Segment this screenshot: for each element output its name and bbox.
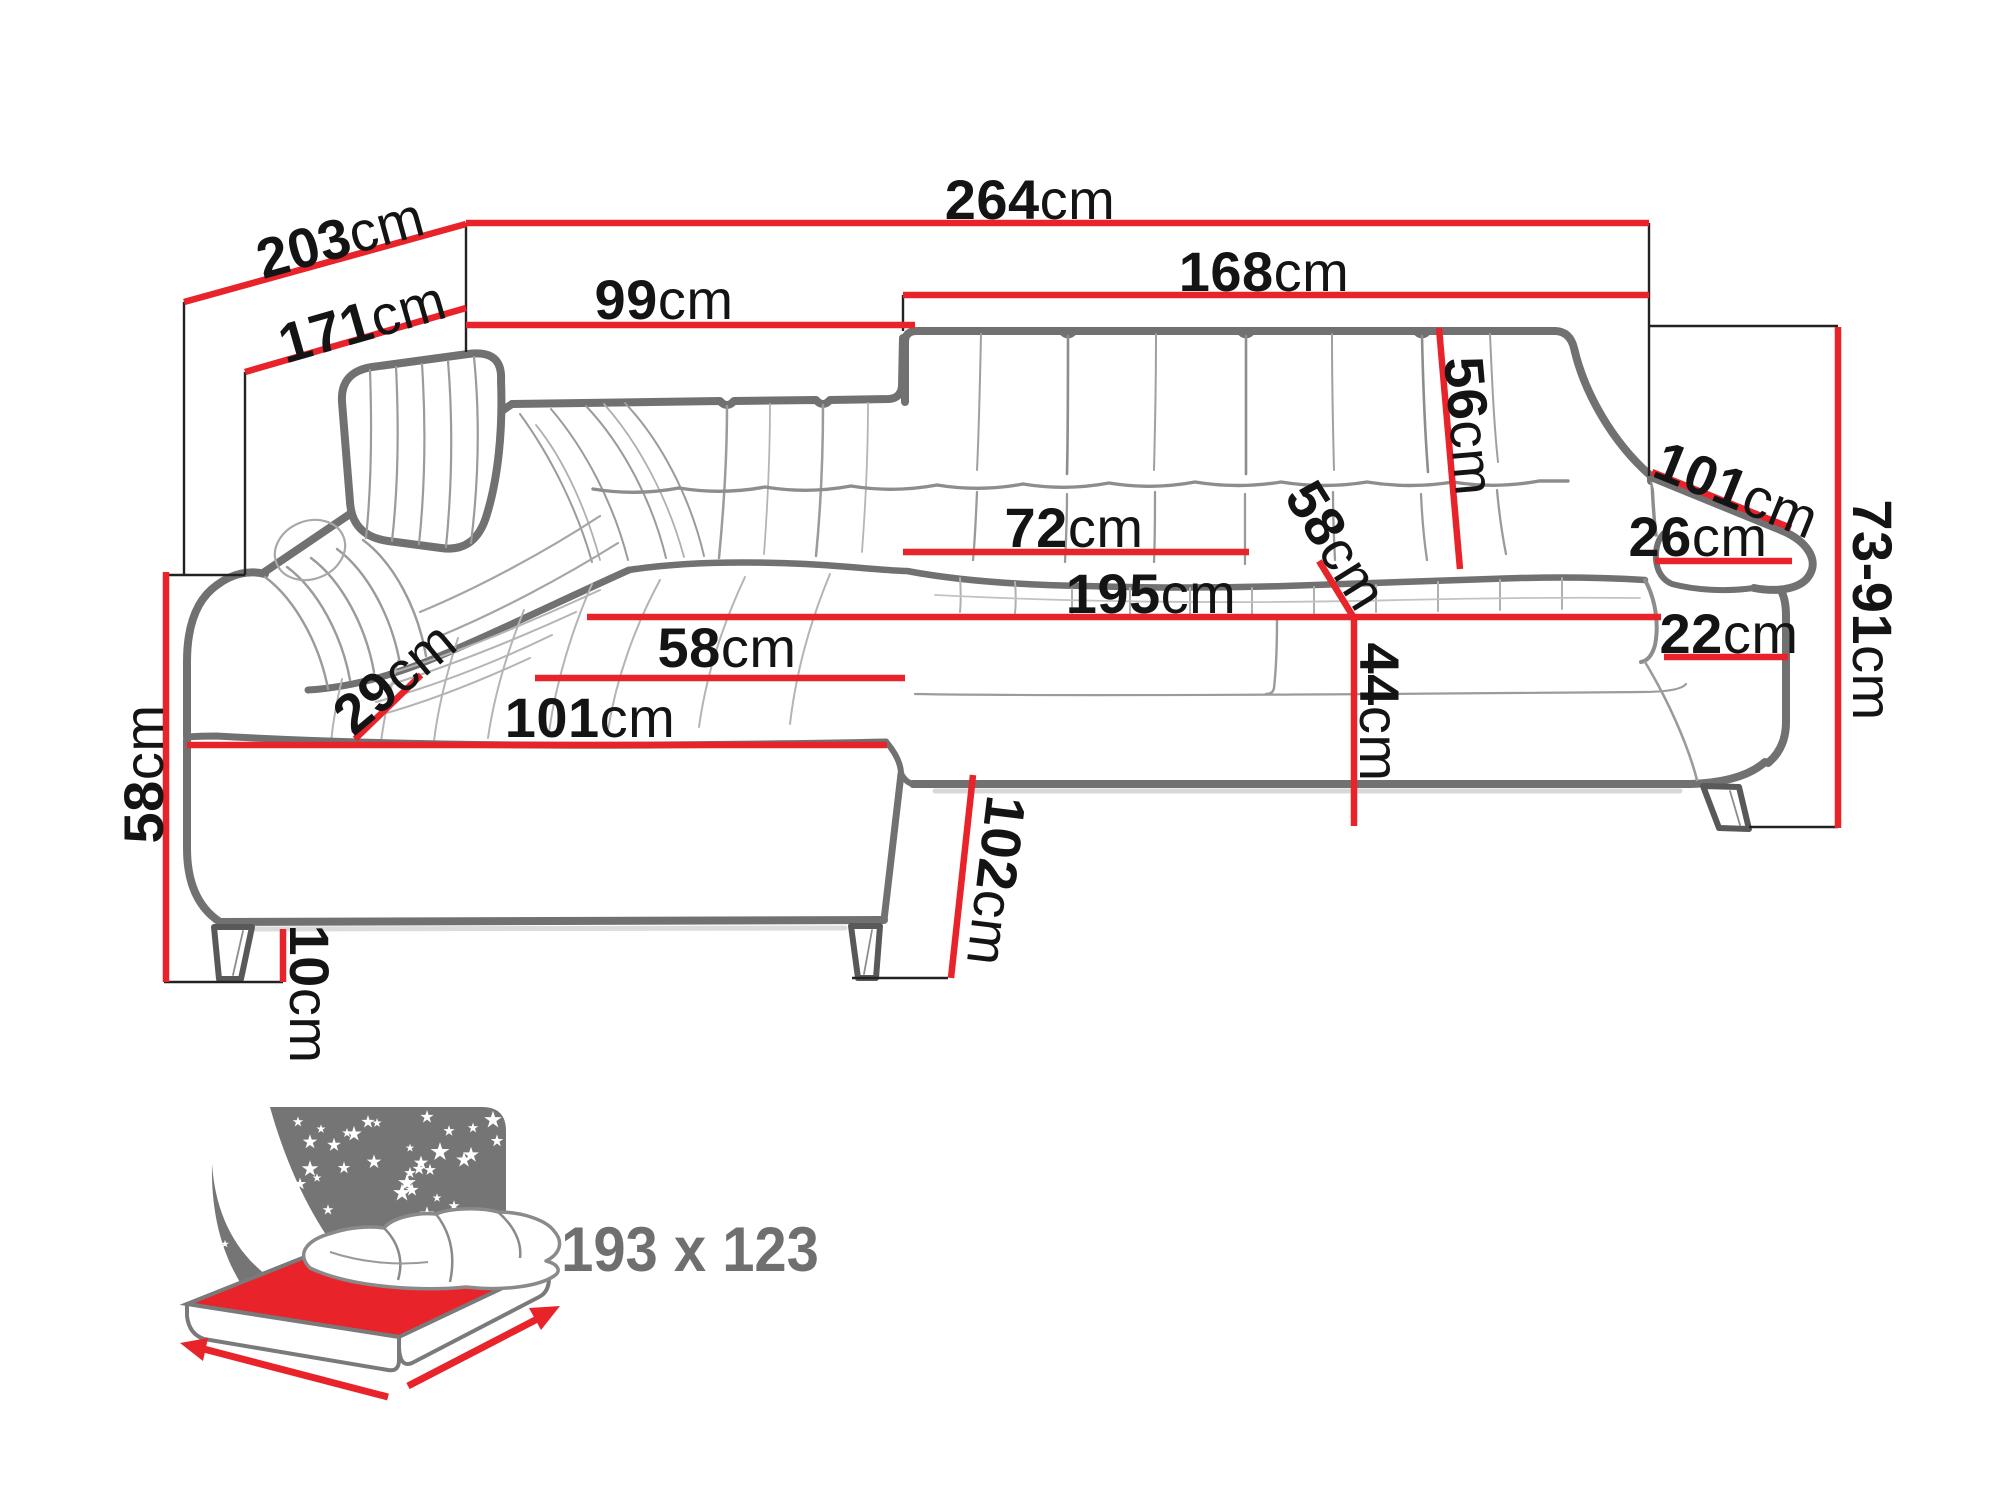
svg-text:56cm: 56cm	[1432, 354, 1507, 498]
svg-text:193 x 123: 193 x 123	[561, 1214, 819, 1285]
svg-text:168cm: 168cm	[1179, 240, 1350, 303]
svg-text:264cm: 264cm	[945, 168, 1116, 231]
svg-text:44cm: 44cm	[1348, 643, 1411, 782]
svg-text:101cm: 101cm	[505, 686, 676, 749]
svg-text:58cm: 58cm	[112, 705, 175, 844]
svg-text:26cm: 26cm	[1629, 505, 1768, 568]
svg-text:73-91cm: 73-91cm	[1841, 499, 1904, 720]
svg-text:72cm: 72cm	[1005, 496, 1144, 559]
svg-text:22cm: 22cm	[1660, 602, 1799, 665]
svg-text:99cm: 99cm	[595, 268, 734, 331]
svg-text:58cm: 58cm	[658, 616, 797, 679]
svg-text:195cm: 195cm	[1066, 562, 1237, 625]
svg-text:10cm: 10cm	[278, 925, 341, 1064]
